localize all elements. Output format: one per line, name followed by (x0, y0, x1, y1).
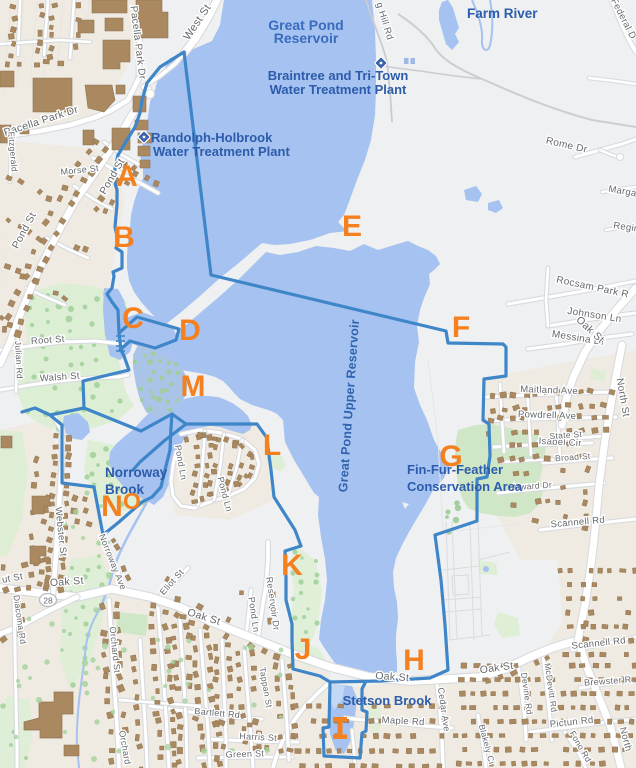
svg-text:Conservation Area: Conservation Area (407, 479, 523, 494)
svg-text:L: L (263, 429, 281, 462)
svg-text:Powdrell Ave: Powdrell Ave (518, 409, 577, 422)
svg-text:Randolph-Holbrook: Randolph-Holbrook (151, 130, 273, 145)
svg-text:O: O (123, 488, 141, 514)
svg-text:Oak St: Oak St (49, 575, 84, 589)
svg-text:28: 28 (43, 596, 53, 606)
svg-text:G: G (439, 440, 462, 473)
svg-text:D: D (179, 314, 201, 347)
svg-text:A: A (116, 160, 138, 193)
svg-text:F: F (452, 311, 470, 344)
svg-text:Root St: Root St (31, 334, 66, 347)
svg-text:Water Treatment Plant: Water Treatment Plant (153, 144, 290, 159)
svg-text:J: J (295, 633, 312, 666)
svg-text:H: H (403, 644, 425, 677)
svg-text:Harris St: Harris St (239, 731, 277, 743)
svg-text:Maple Rd: Maple Rd (381, 715, 425, 728)
svg-text:Maitland Ave: Maitland Ave (520, 384, 578, 397)
svg-text:Braintree and Tri-Town: Braintree and Tri-Town (268, 68, 409, 83)
svg-text:Julian Rd: Julian Rd (13, 341, 25, 380)
svg-text:Farm River: Farm River (467, 6, 538, 21)
svg-text:B: B (113, 221, 135, 254)
svg-text:Water Treatment Plant: Water Treatment Plant (270, 82, 407, 97)
svg-text:K: K (281, 549, 303, 582)
svg-text:Stetson Brook: Stetson Brook (343, 693, 433, 708)
svg-text:E: E (342, 210, 362, 243)
svg-text:M: M (181, 370, 206, 403)
svg-text:Reservoir: Reservoir (274, 30, 339, 46)
svg-text:N: N (101, 490, 123, 523)
svg-text:Green St: Green St (226, 748, 265, 759)
svg-text:Norroway: Norroway (105, 465, 168, 480)
svg-text:C: C (122, 302, 144, 335)
